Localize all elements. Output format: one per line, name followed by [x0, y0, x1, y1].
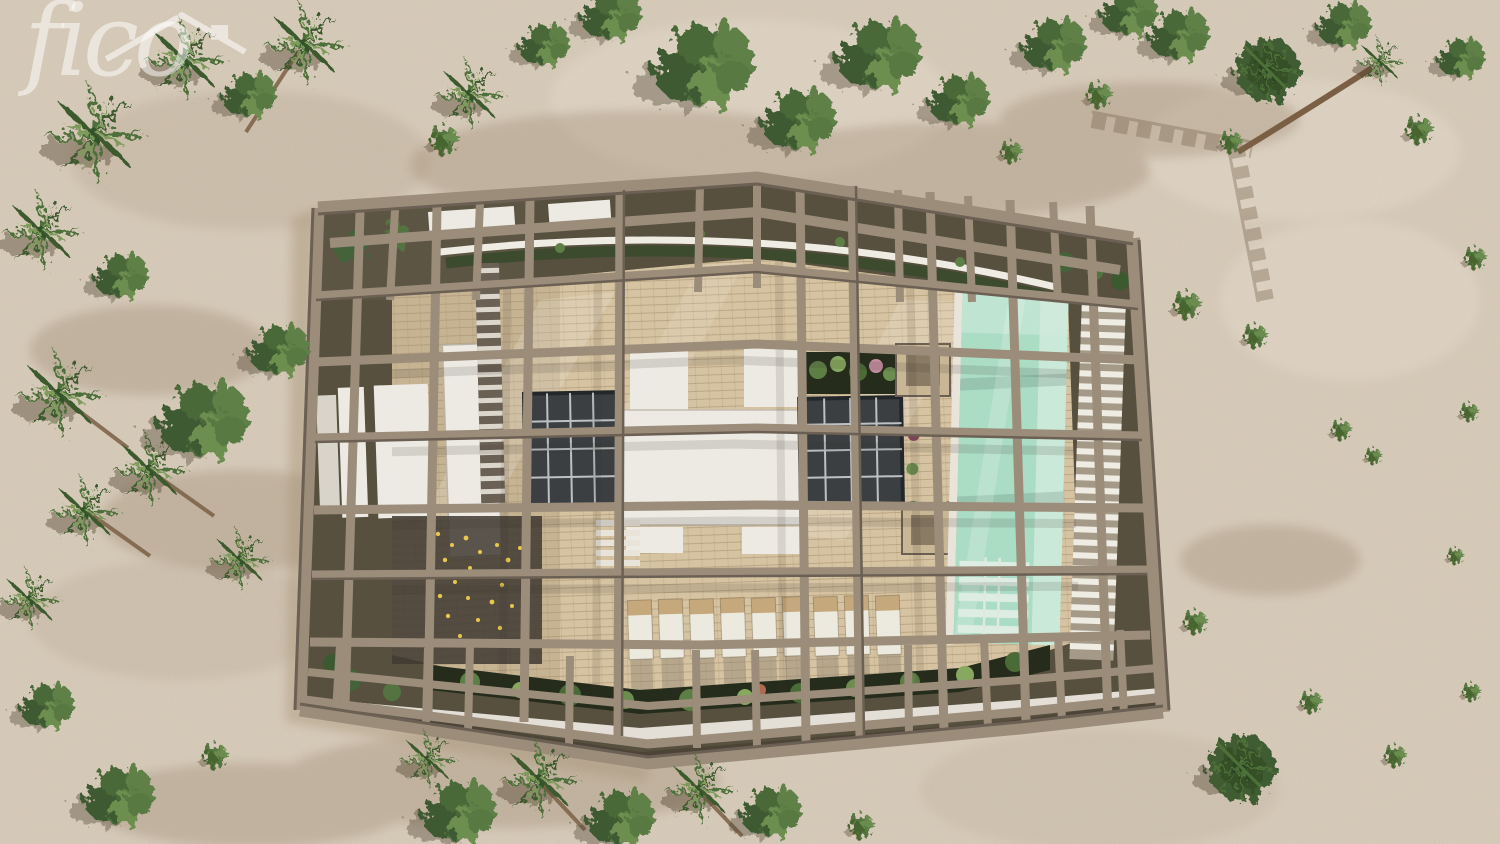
render-canvas: fico [0, 0, 1500, 844]
pool [945, 286, 1068, 647]
brand-watermark: fico [24, 0, 189, 96]
roof-planter-north [798, 352, 898, 394]
house-roof-icon [102, 8, 252, 64]
villa [286, 178, 1169, 782]
aerial-render [0, 0, 1500, 844]
